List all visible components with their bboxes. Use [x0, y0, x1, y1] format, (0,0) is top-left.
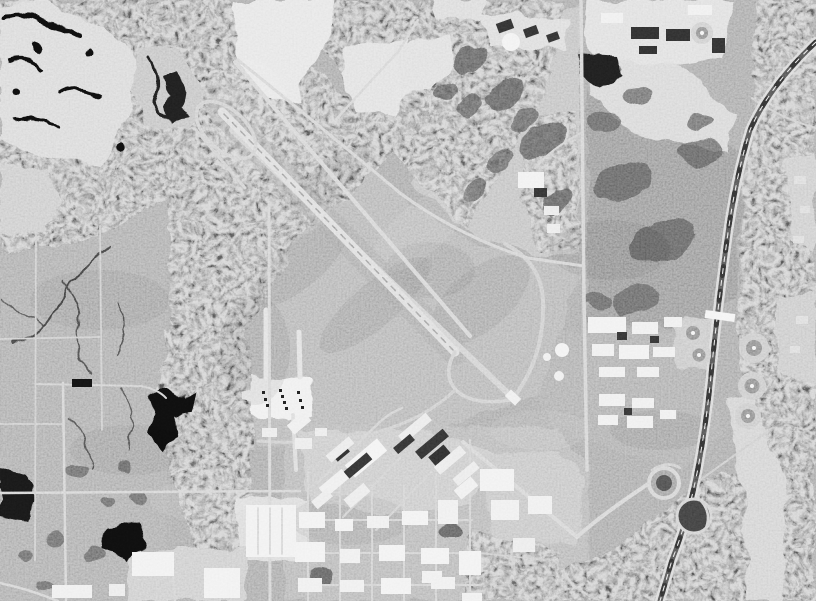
building: [544, 206, 559, 215]
building: [599, 394, 625, 406]
parked-aircraft: [262, 391, 265, 394]
building: [653, 347, 675, 357]
tree-clump: [686, 114, 714, 130]
building: [459, 551, 481, 575]
house-clearing-east-2: [774, 292, 816, 386]
school-building-dark: [639, 46, 657, 54]
water-spot: [10, 90, 18, 98]
water-spot: [84, 48, 92, 56]
building: [299, 512, 325, 528]
parked-aircraft: [285, 407, 288, 410]
building: [528, 496, 552, 514]
parked-aircraft: [301, 406, 304, 409]
building: [340, 549, 360, 563]
parked-aircraft: [279, 389, 282, 392]
building: [109, 584, 125, 596]
building-dark-roof: [650, 336, 659, 343]
tonal-smudge: [550, 220, 670, 280]
tree-clump: [84, 548, 108, 564]
school-building: [601, 13, 623, 23]
building: [367, 516, 389, 528]
building: [438, 500, 458, 524]
building: [664, 317, 682, 327]
house: [794, 176, 806, 184]
house: [793, 236, 804, 243]
building: [204, 568, 240, 598]
building: [619, 345, 649, 359]
building: [599, 367, 625, 377]
storage-tank: [554, 371, 564, 381]
parked-aircraft: [264, 398, 267, 401]
parked-aircraft: [299, 399, 302, 402]
building-dark-roof: [617, 332, 627, 340]
building: [402, 511, 428, 525]
building: [295, 542, 325, 562]
tonal-smudge: [70, 425, 190, 475]
shed-dark: [72, 379, 92, 387]
ball-diamond-plate: [746, 414, 750, 418]
clubhouse-dark-wing: [534, 188, 547, 197]
west-road-x36: [35, 224, 36, 560]
parked-aircraft: [266, 404, 269, 407]
tree-clump: [585, 294, 611, 310]
parked-aircraft: [281, 395, 284, 398]
building: [632, 398, 654, 408]
school-building-dark: [666, 29, 690, 41]
cloverleaf-loop-west-center: [656, 475, 672, 491]
tonal-highlight: [490, 410, 590, 450]
water-spot: [116, 144, 124, 152]
building: [637, 367, 659, 377]
aerial-photo: [0, 0, 816, 601]
ball-diamond-plate: [700, 31, 704, 35]
building: [340, 580, 364, 592]
building: [660, 410, 676, 419]
building: [547, 224, 560, 233]
tree-clump: [66, 464, 86, 476]
ball-diamond-plate: [752, 346, 756, 350]
building: [462, 593, 482, 601]
photo-layers: [0, 0, 816, 601]
building: [632, 322, 658, 334]
warehouse-large: [246, 505, 296, 557]
building: [381, 578, 411, 594]
building: [132, 552, 174, 576]
clubhouse: [518, 172, 544, 188]
tree-clump: [131, 494, 149, 506]
building: [588, 317, 626, 333]
storage-tank: [555, 343, 569, 357]
hangar: [315, 428, 327, 436]
sand-clearing-north-4: [435, 0, 486, 18]
school-building: [688, 5, 712, 15]
tree-clump: [33, 580, 51, 592]
hangar: [295, 438, 312, 449]
building-dark-roof: [624, 408, 632, 415]
building: [592, 344, 614, 356]
ball-diamond-plate: [750, 384, 754, 388]
parked-aircraft: [283, 401, 286, 404]
building: [298, 578, 322, 592]
ball-diamond-plate: [691, 331, 695, 335]
tree-clump: [46, 533, 66, 547]
water-dome: [502, 33, 520, 51]
hangar: [262, 428, 277, 437]
house: [796, 316, 808, 324]
house: [790, 346, 800, 353]
building: [491, 500, 519, 520]
tonal-highlight: [150, 480, 250, 520]
building: [598, 415, 618, 425]
tree-clump: [102, 495, 118, 505]
building: [513, 538, 535, 552]
building: [431, 577, 455, 589]
tree-clump: [20, 551, 36, 561]
building: [379, 545, 405, 561]
building: [421, 548, 449, 564]
building: [335, 519, 353, 531]
tree-clump: [442, 523, 462, 537]
ball-diamond-plate: [697, 353, 701, 357]
house: [800, 206, 810, 213]
tree-clump: [625, 86, 655, 104]
school-building-dark: [631, 27, 659, 39]
building: [52, 585, 92, 598]
storage-tank: [543, 353, 551, 361]
parked-aircraft: [297, 391, 300, 394]
building: [480, 469, 514, 491]
water-spot: [29, 42, 39, 52]
tonal-smudge: [220, 295, 290, 405]
building-dark-roof: [712, 38, 725, 53]
apron-taxi-strip: [299, 332, 300, 377]
building: [627, 416, 653, 428]
aerial-photo-canvas: [0, 0, 816, 601]
